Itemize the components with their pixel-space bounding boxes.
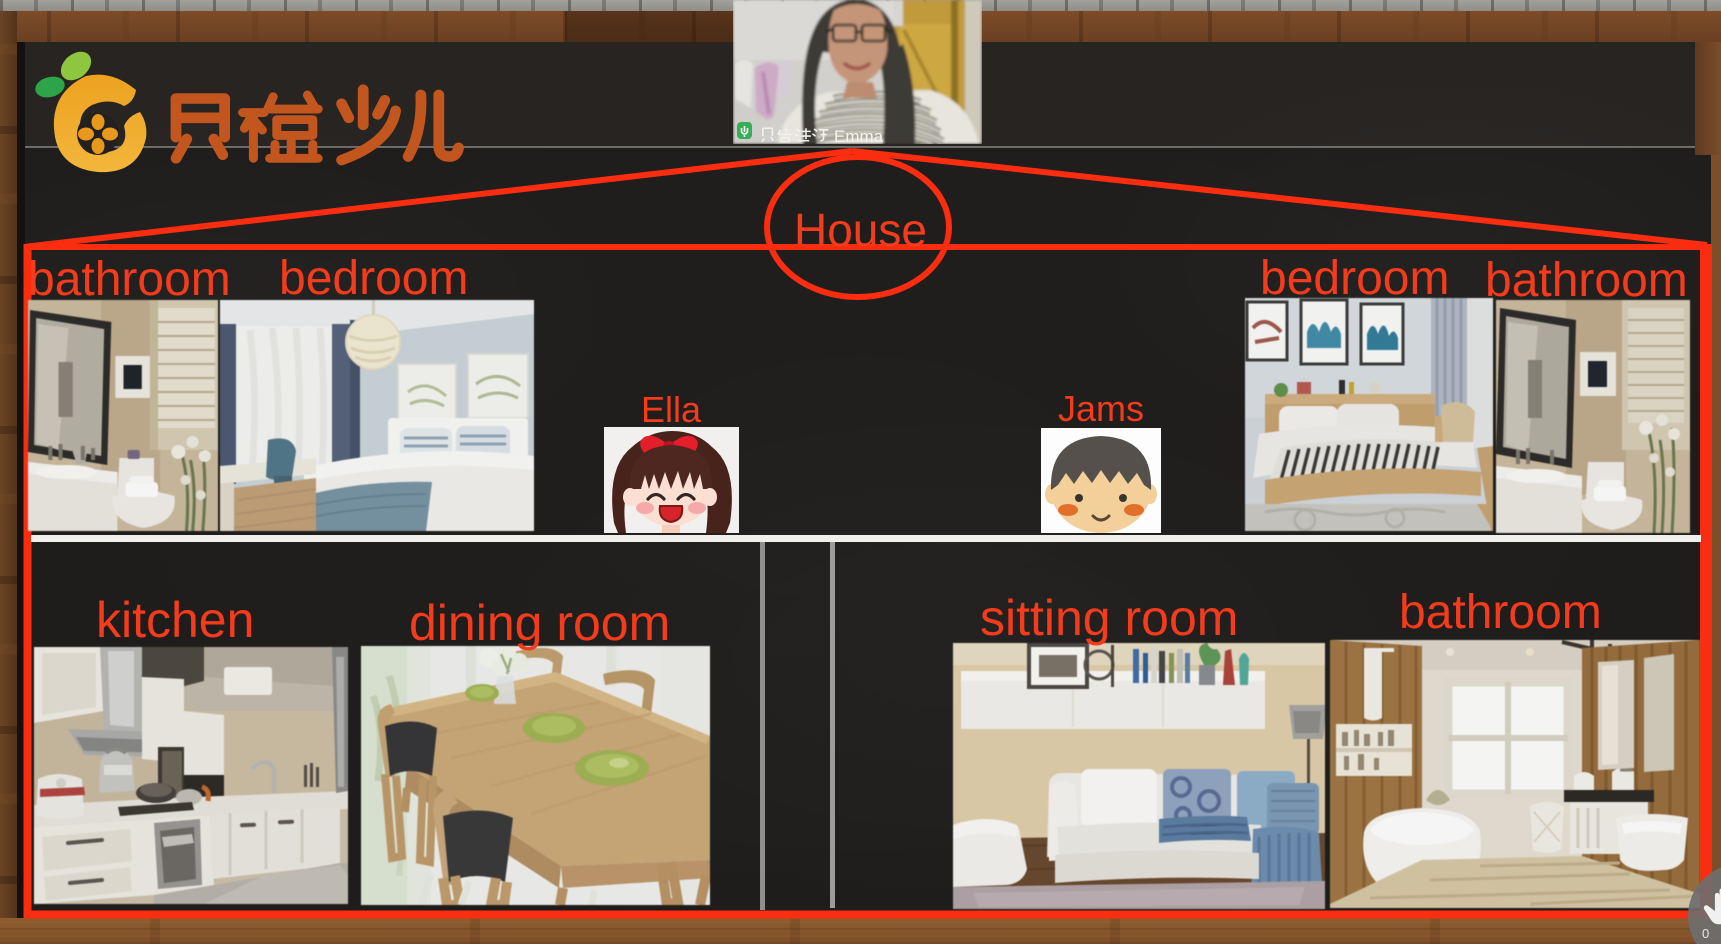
svg-text:0: 0 [1702, 926, 1709, 941]
